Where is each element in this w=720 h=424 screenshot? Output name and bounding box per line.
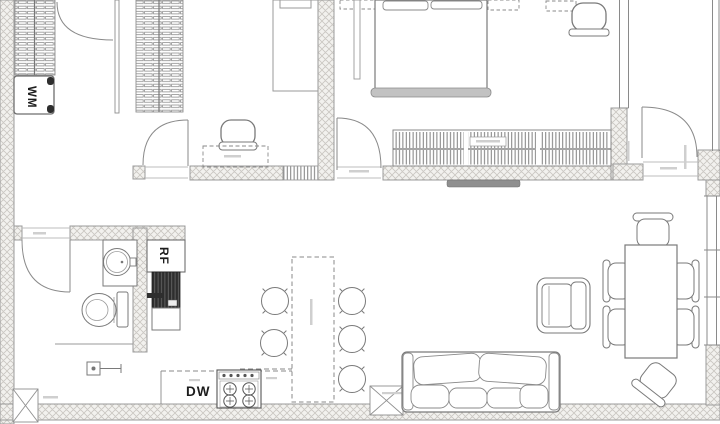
toilet-tank [117, 292, 128, 327]
kitchen-island [292, 257, 334, 402]
entry-closet: WM [14, 0, 119, 114]
bed-footboard [371, 88, 491, 97]
wall-left [0, 0, 14, 424]
stool [262, 288, 289, 315]
window-bedroom-partition [620, 0, 629, 108]
wall-center-vertical [318, 0, 334, 180]
sofa-back-cushion-left [413, 353, 482, 386]
wall-bottom [0, 404, 720, 420]
dining-chair-bottom [630, 357, 682, 408]
stool [339, 366, 366, 393]
kitchen-microlabel-2 [266, 377, 277, 379]
living-room [370, 180, 699, 415]
floor-plan-canvas: WM [0, 0, 720, 424]
pillow-left [383, 1, 428, 10]
office-chair [219, 120, 257, 150]
shower-fixture [87, 362, 121, 375]
wall-right-upper [706, 180, 720, 196]
floor-plan-drawing: WM [0, 0, 720, 424]
dining-set [603, 213, 699, 408]
wall-rightroom-bottom [613, 164, 643, 180]
door-bathroom [22, 240, 70, 292]
wall-bedroom-bottom [383, 166, 612, 180]
wall-right-corner-block [698, 150, 720, 180]
wm-corner-pad-top [47, 77, 54, 85]
office-room [136, 0, 318, 167]
wardrobe-microlabel [476, 140, 500, 143]
window-right-living [704, 196, 720, 345]
refrigerator-label: RF [157, 247, 171, 265]
washing-machine: WM [14, 76, 54, 114]
sink-basin [104, 249, 131, 276]
vanity-chair [569, 3, 609, 36]
armchair-seat [542, 284, 572, 327]
oven-chip [168, 300, 177, 306]
sink-vanity [103, 240, 137, 286]
wardrobe-section-gap-1 [464, 131, 468, 165]
sink-faucet [130, 258, 136, 266]
stool [261, 330, 288, 357]
toilet-bowl [82, 294, 116, 327]
door-rightroom [642, 107, 697, 158]
wall-office-bottom-end [133, 166, 145, 179]
door-office [143, 120, 188, 166]
window-right-top [713, 0, 720, 151]
monitor [280, 0, 311, 8]
wall-bath-stub [14, 226, 22, 240]
sink-drain [121, 261, 124, 264]
stool [339, 288, 366, 315]
nightstand-vanity [546, 1, 576, 11]
stove [217, 370, 261, 408]
sofa-arm-right [549, 353, 559, 410]
entry-partition [115, 0, 119, 113]
wall-bath-kitchen-top [70, 226, 185, 240]
wall-right-lower [706, 345, 720, 405]
oven-handle [147, 293, 164, 298]
nightstand-right [488, 0, 519, 10]
kitchen-cabinet [152, 308, 180, 330]
oven-appliance [147, 272, 180, 308]
washing-machine-label: WM [25, 86, 37, 108]
dining-table [625, 245, 677, 358]
wall-office-bottom [190, 166, 283, 180]
bath-microlabel [43, 396, 58, 399]
dishwasher-label: DW [186, 384, 211, 399]
stool [339, 326, 366, 353]
refrigerator: RF [147, 240, 185, 272]
hanger-band-bottom [395, 150, 609, 165]
door-bedroom [337, 118, 381, 170]
ac-floor-unit [370, 386, 403, 415]
bathroom [13, 240, 137, 422]
sofa-seat-cushions [411, 385, 548, 408]
sofa [402, 352, 560, 412]
dining-chair-top [633, 213, 673, 247]
kitchen-microlabel-1 [189, 379, 200, 381]
island-microlabel [310, 299, 313, 325]
armchair-back [571, 282, 586, 329]
wardrobe-section-gap-2 [536, 131, 540, 165]
shower-tray [13, 389, 38, 422]
wardrobe-hangers [393, 130, 611, 166]
bedroom-side-panel [354, 0, 360, 79]
bedroom [340, 0, 611, 166]
toilet [82, 292, 128, 327]
bed [371, 0, 491, 97]
office-desk-wall-unit [273, 0, 318, 91]
door-entry [57, 2, 113, 40]
office-desk-microlabel [224, 155, 241, 158]
kitchen: RF DW [147, 240, 366, 408]
armchair [537, 278, 590, 333]
wall-vent-strip [283, 166, 318, 180]
sofa-back-cushion-right [478, 353, 547, 386]
pillow-right [431, 1, 482, 9]
tv-unit [447, 180, 520, 187]
wm-corner-pad-bottom [47, 105, 54, 113]
